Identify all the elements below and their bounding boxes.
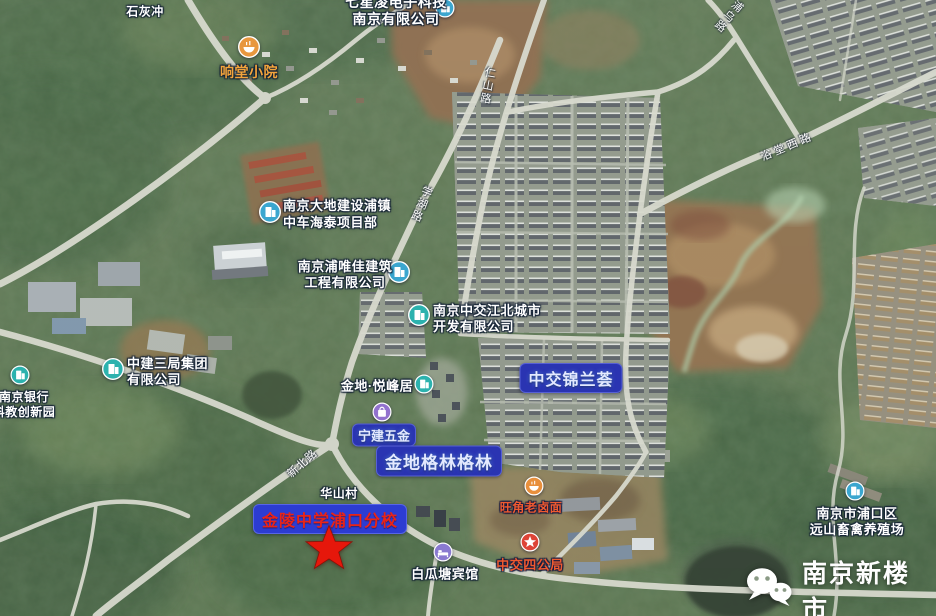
wechat-icon — [744, 565, 794, 616]
company-label-line2: 有限公司 — [127, 372, 208, 388]
company-label-qixing-electronics[interactable]: 七星凌电子科技 南京有限公司 — [345, 0, 447, 28]
star-badge-icon[interactable] — [521, 533, 540, 552]
poi-label-line2: 科教创新园 — [0, 405, 55, 420]
company-label-line2: 中车海泰项目部 — [283, 214, 391, 231]
company-label-line2: 南京有限公司 — [345, 11, 447, 28]
company-label-line2: 工程有限公司 — [298, 275, 393, 291]
building-icon[interactable] — [11, 366, 30, 385]
building-icon[interactable] — [102, 358, 124, 380]
poi-label-jindi-yuefengju[interactable]: 金地·悦峰居 — [341, 376, 413, 395]
watermark-text: 南京新楼市 — [802, 554, 936, 616]
building-icon[interactable] — [408, 304, 430, 326]
satellite-map: 仁山路 学湖路 浦乌路 浴堂西路 新北路 石灰冲 响堂小院 — [0, 0, 936, 616]
village-label-shihuichong[interactable]: 石灰冲 — [126, 3, 164, 20]
hotel-label-baiguatang[interactable]: 白瓜塘宾馆 — [411, 564, 479, 583]
shop-bag-icon[interactable] — [373, 403, 392, 422]
poi-label-line1: 南京银行 — [0, 390, 55, 405]
hotel-bed-icon[interactable] — [434, 543, 453, 562]
company-label-line1: 南京中交江北城市 — [433, 303, 541, 319]
shop-label-ningjian-hardware[interactable]: 宁建五金 — [352, 424, 416, 447]
watermark: 南京新楼市 — [744, 554, 936, 616]
company-label-line1: 中建三局集团 — [127, 356, 208, 372]
company-label-dadi-construction[interactable]: 南京大地建设浦镇 中车海泰项目部 — [283, 197, 391, 231]
company-label-line1: 南京大地建设浦镇 — [283, 197, 391, 214]
poi-label-xiangtang-courtyard[interactable]: 响堂小院 — [220, 62, 278, 82]
company-label-zhongjiao-jiangbei[interactable]: 南京中交江北城市 开发有限公司 — [433, 303, 541, 335]
building-icon[interactable] — [846, 482, 865, 501]
building-icon[interactable] — [415, 375, 434, 394]
company-label-zhongjian-3ju[interactable]: 中建三局集团 有限公司 — [127, 356, 208, 388]
company-label-line2: 开发有限公司 — [433, 319, 541, 335]
company-label-line1: 南京浦唯佳建筑 — [298, 259, 393, 275]
farm-label-line2: 远山畜禽养殖场 — [810, 522, 905, 538]
poi-label-njbank-park[interactable]: 南京银行 科教创新园 — [0, 390, 55, 420]
noodle-bowl-icon[interactable] — [525, 477, 544, 496]
building-icon[interactable] — [259, 201, 281, 223]
estate-label-jindi-green-green[interactable]: 金地格林格林 — [376, 446, 502, 477]
company-label-puweijia[interactable]: 南京浦唯佳建筑 工程有限公司 — [298, 259, 393, 291]
village-label-huashan[interactable]: 华山村 — [320, 485, 358, 502]
company-label-zhongjiao-4th-bureau[interactable]: 中交四公局 — [496, 555, 564, 574]
estate-label-zhongjiao-jinlanhui[interactable]: 中交锦兰荟 — [519, 363, 622, 393]
farm-label-yuanshan-livestock[interactable]: 南京市浦口区 远山畜禽养殖场 — [810, 506, 905, 538]
red-star-marker — [305, 525, 353, 576]
restaurant-icon[interactable] — [238, 36, 260, 58]
company-label-line1: 七星凌电子科技 — [345, 0, 447, 11]
restaurant-label-wangjiao-noodles[interactable]: 旺角老卤面 — [500, 499, 563, 516]
farm-label-line1: 南京市浦口区 — [810, 506, 905, 522]
